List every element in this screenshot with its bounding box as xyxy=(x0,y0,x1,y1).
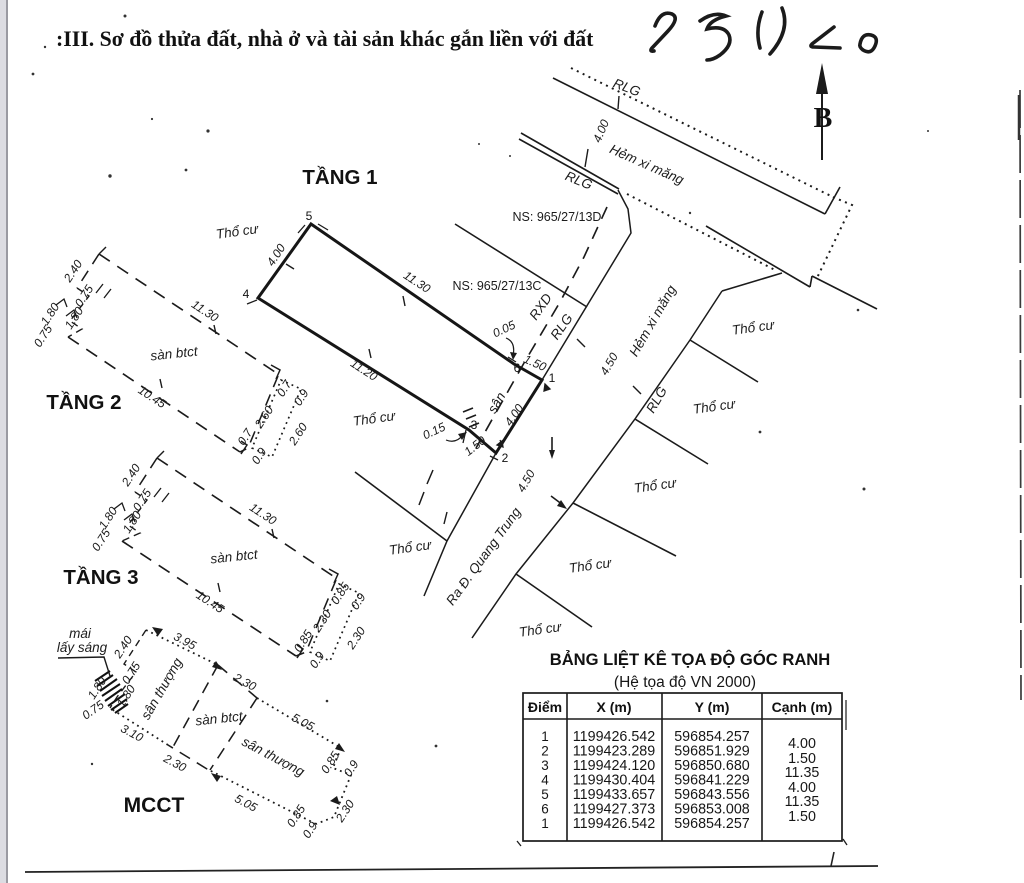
svg-text:1: 1 xyxy=(541,729,549,744)
svg-text:4: 4 xyxy=(541,773,549,788)
svg-text:TẦNG 2: TẦNG 2 xyxy=(46,391,121,414)
svg-text:mái: mái xyxy=(69,626,92,641)
svg-text:TẦNG 1: TẦNG 1 xyxy=(302,166,377,189)
svg-text:5: 5 xyxy=(306,209,313,223)
svg-text:2: 2 xyxy=(541,744,549,759)
svg-text:4.00: 4.00 xyxy=(788,736,816,752)
svg-text::III. Sơ đồ thửa đất, nhà ở và: :III. Sơ đồ thửa đất, nhà ở và tài sản k… xyxy=(56,27,594,51)
svg-text:NS: 965/27/13C: NS: 965/27/13C xyxy=(453,279,542,293)
svg-text:1: 1 xyxy=(541,816,549,831)
svg-text:NS: 965/27/13D: NS: 965/27/13D xyxy=(513,210,602,224)
svg-text:TẦNG 3: TẦNG 3 xyxy=(63,566,138,589)
svg-text:1199426.542: 1199426.542 xyxy=(573,816,655,832)
svg-text:11.35: 11.35 xyxy=(785,794,820,810)
svg-text:Điểm: Điểm xyxy=(528,699,562,715)
svg-text:X (m): X (m) xyxy=(597,699,632,715)
svg-text:6: 6 xyxy=(541,802,549,817)
svg-text:4: 4 xyxy=(243,287,250,301)
svg-text:1: 1 xyxy=(549,371,556,385)
svg-text:MCCT: MCCT xyxy=(124,794,185,817)
svg-text:(Hệ tọa độ VN 2000): (Hệ tọa độ VN 2000) xyxy=(614,674,756,691)
svg-text:Y (m): Y (m) xyxy=(695,699,730,715)
svg-text:Cạnh (m): Cạnh (m) xyxy=(772,699,833,715)
svg-text:3: 3 xyxy=(541,758,549,773)
svg-text:11.35: 11.35 xyxy=(785,765,820,781)
svg-text:lấy sáng: lấy sáng xyxy=(57,640,108,655)
svg-text:5: 5 xyxy=(541,787,549,802)
svg-text:B: B xyxy=(814,103,833,134)
svg-text:BẢNG LIỆT KÊ TỌA ĐỘ GÓC RANH: BẢNG LIỆT KÊ TỌA ĐỘ GÓC RANH xyxy=(550,650,831,669)
svg-text:2: 2 xyxy=(502,451,509,465)
svg-text:1.50: 1.50 xyxy=(788,809,816,825)
svg-text:596854.257: 596854.257 xyxy=(674,816,750,832)
svg-text:6: 6 xyxy=(514,361,521,375)
